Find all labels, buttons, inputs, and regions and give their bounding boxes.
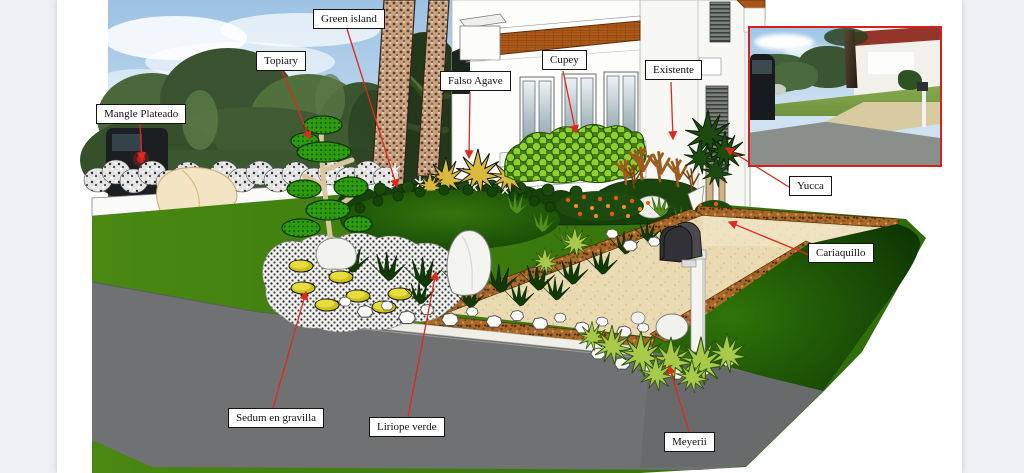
inset-site-photo [748,26,942,167]
chimney [460,26,500,60]
callout-sedum-en-gravilla: Sedum en gravilla [228,408,324,428]
callout-cariaquillo: Cariaquillo [808,243,874,263]
callout-cupey: Cupey [542,50,587,70]
callout-green-island: Green island [313,9,385,29]
callout-existente: Existente [645,60,702,80]
inset-mailbox [917,82,928,91]
topiary-rock [316,238,356,269]
meyerii-boulder [656,314,688,340]
callout-topiary: Topiary [256,51,306,71]
louver-window [710,2,730,42]
callout-falso-agave: Falso Agave [440,71,511,91]
callout-liriope-verde: Liriope verde [369,417,445,437]
inset-van-window [752,60,772,74]
callout-mangle-plateado: Mangle Plateado [96,104,186,124]
callout-yucca: Yucca [789,176,832,196]
island-boulder [447,230,491,295]
screenshot-root: Mangle Plateado Topiary Green island Fal… [0,0,1024,473]
callout-meyerii: Meyerii [664,432,715,452]
